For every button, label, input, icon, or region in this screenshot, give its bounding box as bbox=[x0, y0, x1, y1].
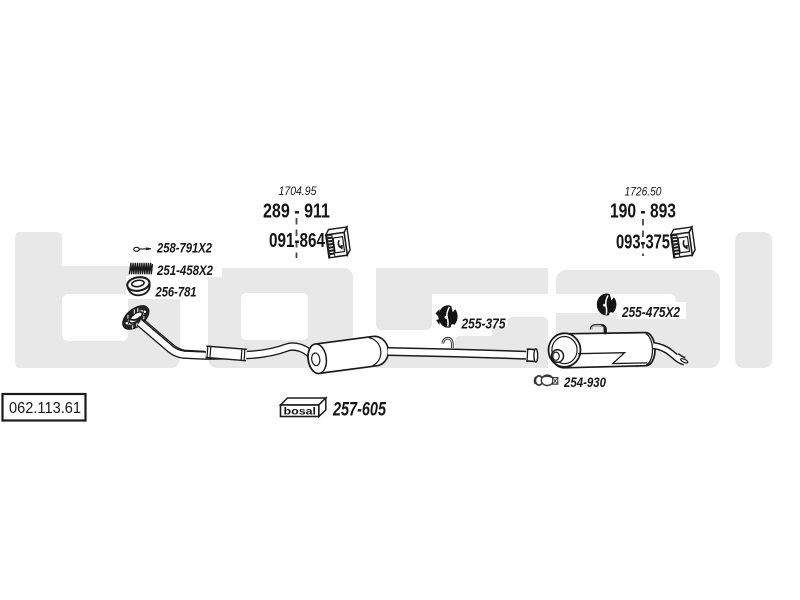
svg-text:256-781: 256-781 bbox=[155, 284, 197, 300]
svg-text:258-791X2: 258-791X2 bbox=[156, 240, 212, 256]
svg-text:254-930: 254-930 bbox=[563, 375, 606, 390]
svg-text:257-605: 257-605 bbox=[332, 400, 386, 421]
svg-text:289 - 911: 289 - 911 bbox=[263, 200, 330, 222]
svg-text:062.113.61: 062.113.61 bbox=[9, 400, 81, 417]
svg-text:255-475X2: 255-475X2 bbox=[621, 305, 680, 321]
svg-text:190 - 893: 190 - 893 bbox=[610, 201, 676, 223]
svg-text:251-458X2: 251-458X2 bbox=[156, 262, 213, 278]
svg-text:091-864: 091-864 bbox=[269, 230, 326, 252]
svg-text:1726.50: 1726.50 bbox=[625, 187, 663, 199]
svg-text:093-375: 093-375 bbox=[616, 232, 670, 254]
svg-text:255-375: 255-375 bbox=[461, 316, 507, 332]
svg-text:bosal: bosal bbox=[284, 406, 317, 417]
svg-text:1704.95: 1704.95 bbox=[279, 186, 318, 198]
